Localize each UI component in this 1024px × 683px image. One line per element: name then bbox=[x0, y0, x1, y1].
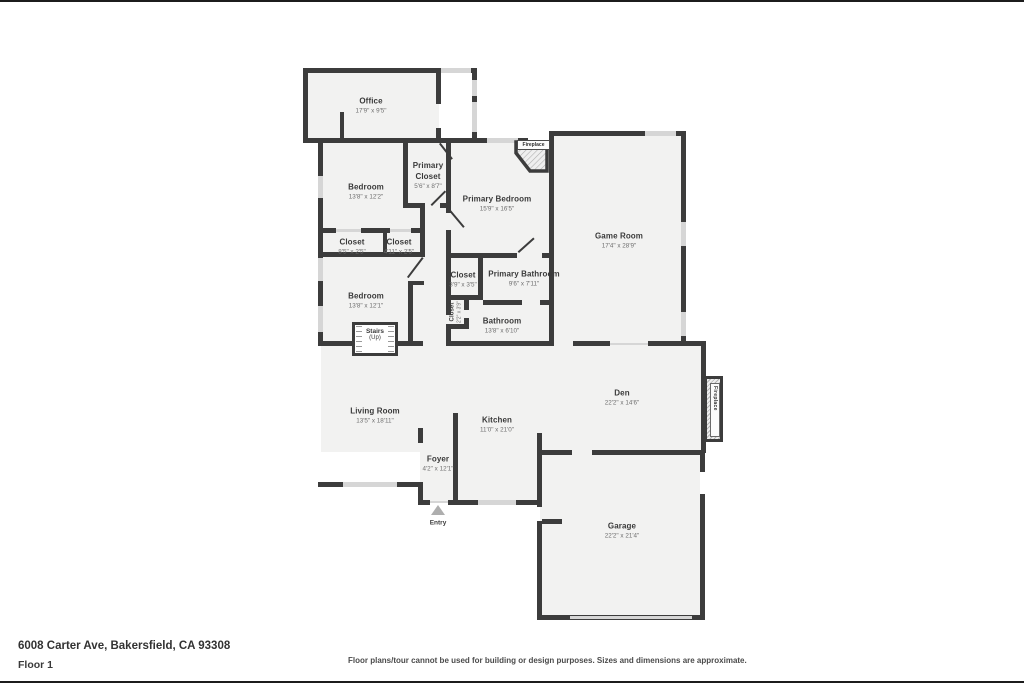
room-name: Living Room bbox=[350, 406, 400, 417]
room-dims: 22'2" x 21'4" bbox=[605, 532, 640, 541]
opening-threshold bbox=[610, 343, 648, 345]
fireplace-label: Fireplace bbox=[517, 140, 550, 150]
wall bbox=[537, 433, 542, 507]
wall bbox=[453, 413, 458, 505]
room-name: Closet bbox=[384, 237, 415, 248]
entry-label: Entry bbox=[430, 520, 447, 527]
stairs-label: Stairs (Up) bbox=[355, 328, 395, 342]
wall bbox=[303, 68, 443, 73]
screen-top-border bbox=[0, 0, 1024, 2]
window bbox=[318, 258, 323, 281]
wall bbox=[408, 285, 413, 346]
room-name: Bathroom bbox=[483, 316, 522, 327]
room-label-closet-a: Closet 8'5" x 2'5" bbox=[338, 237, 366, 256]
window bbox=[343, 482, 397, 487]
room-label-closet-c: Closet 3'9" x 3'5" bbox=[449, 270, 477, 289]
wall bbox=[446, 324, 469, 329]
room-name: Primary Closet bbox=[402, 161, 454, 183]
wall bbox=[303, 68, 308, 143]
room-label-garage: Garage 22'2" x 21'4" bbox=[605, 521, 640, 540]
wall bbox=[648, 341, 706, 346]
wall bbox=[446, 341, 553, 346]
room-dims: 2'2" x 3'9" bbox=[457, 301, 464, 323]
floor-label: Floor 1 bbox=[18, 659, 53, 671]
entry-arrow-icon bbox=[431, 505, 445, 515]
room-name: Primary Bathroom bbox=[488, 269, 559, 280]
wall bbox=[573, 341, 610, 346]
room-label-primary-closet: Primary Closet 5'6" x 8'7" bbox=[402, 161, 454, 191]
wall bbox=[478, 258, 483, 300]
room-name: Primary Bedroom bbox=[463, 194, 532, 205]
window bbox=[318, 306, 323, 332]
window bbox=[472, 102, 477, 132]
room-name: Office bbox=[355, 96, 386, 107]
stairs-name: Stairs bbox=[355, 328, 395, 335]
room-dims: 22'2" x 14'6" bbox=[605, 399, 640, 408]
wall bbox=[464, 300, 469, 310]
room-label-closet-b: Closet 4'11" x 2'5" bbox=[384, 237, 415, 256]
room-name: Closet bbox=[338, 237, 366, 248]
room-dims: 17'9" x 9'5" bbox=[355, 107, 386, 116]
room-dims: 4'11" x 2'5" bbox=[384, 248, 415, 257]
room-label-den: Den 22'2" x 14'6" bbox=[605, 388, 640, 407]
garage-door bbox=[570, 616, 692, 619]
wall bbox=[303, 138, 443, 143]
room-name: Den bbox=[605, 388, 640, 399]
window bbox=[645, 131, 676, 136]
room-dims: 13'8" x 12'2" bbox=[348, 193, 384, 202]
room-name: Bedroom bbox=[348, 182, 384, 193]
window bbox=[441, 68, 473, 73]
wall bbox=[318, 228, 336, 233]
wall bbox=[542, 519, 562, 524]
floor-plan-canvas: Stairs (Up) Fireplace Fireplace Entry Of… bbox=[0, 0, 1024, 683]
wall bbox=[411, 228, 425, 233]
room-name: Foyer bbox=[422, 454, 453, 465]
room-label-bedroom2: Bedroom 13'8" x 12'1" bbox=[348, 291, 384, 310]
room-name: Closet bbox=[449, 270, 477, 281]
room-label-closet-d: Closet 2'2" x 3'9" bbox=[449, 301, 464, 323]
closet-door bbox=[390, 229, 411, 232]
wall bbox=[592, 450, 705, 455]
wall bbox=[537, 521, 542, 620]
room-dims: 5'6" x 8'7" bbox=[402, 183, 454, 192]
fireplace-label: Fireplace bbox=[712, 386, 718, 411]
room-name: Game Room bbox=[595, 231, 643, 242]
room-label-game-room: Game Room 17'4" x 28'9" bbox=[595, 231, 643, 250]
room-label-bedroom1: Bedroom 13'8" x 12'2" bbox=[348, 182, 384, 201]
room-dims: 8'5" x 2'5" bbox=[338, 248, 366, 257]
disclaimer-text: Floor plans/tour cannot be used for buil… bbox=[348, 656, 747, 665]
room-label-primary-bathroom: Primary Bathroom 9'6" x 7'11" bbox=[488, 269, 559, 288]
room-name: Closet bbox=[449, 301, 457, 323]
closet-door bbox=[336, 229, 361, 232]
room-dims: 9'6" x 7'11" bbox=[488, 280, 559, 289]
window bbox=[318, 176, 323, 198]
room-label-primary-bedroom: Primary Bedroom 15'9" x 16'5" bbox=[463, 194, 532, 213]
room-name: Bedroom bbox=[348, 291, 384, 302]
room-name: Garage bbox=[605, 521, 640, 532]
window bbox=[681, 312, 686, 336]
wall bbox=[418, 500, 430, 505]
room-dims: 15'9" x 16'5" bbox=[463, 205, 532, 214]
room-name: Kitchen bbox=[480, 415, 514, 426]
wall bbox=[394, 341, 423, 346]
wall bbox=[436, 68, 441, 104]
wall bbox=[418, 428, 423, 443]
property-address: 6008 Carter Ave, Bakersfield, CA 93308 bbox=[18, 640, 230, 652]
fireplace-den-shape: Fireplace bbox=[704, 376, 723, 442]
room-dims: 17'4" x 28'9" bbox=[595, 242, 643, 251]
room-label-bathroom: Bathroom 13'8" x 6'10" bbox=[483, 316, 522, 335]
entry-threshold bbox=[430, 501, 448, 503]
door-opening bbox=[700, 472, 705, 494]
room-label-office: Office 17'9" x 9'5" bbox=[355, 96, 386, 115]
wall bbox=[436, 128, 441, 143]
stairs-box: Stairs (Up) bbox=[352, 322, 398, 356]
room-label-kitchen: Kitchen 11'0" x 21'0" bbox=[480, 415, 514, 434]
room-fill bbox=[321, 343, 705, 452]
window bbox=[478, 500, 516, 505]
room-dims: 11'0" x 21'0" bbox=[480, 426, 514, 435]
room-label-living-room: Living Room 13'5" x 18'11" bbox=[350, 406, 400, 425]
window bbox=[681, 222, 686, 246]
fireplace-den-inner: Fireplace bbox=[710, 383, 720, 437]
wall bbox=[483, 300, 522, 305]
room-dims: 13'8" x 12'1" bbox=[348, 302, 384, 311]
room-dims: 3'9" x 3'5" bbox=[449, 281, 477, 290]
window bbox=[472, 80, 477, 96]
stairs-direction: (Up) bbox=[355, 335, 395, 342]
wall bbox=[318, 341, 352, 346]
wall bbox=[537, 450, 572, 455]
room-label-foyer: Foyer 4'2" x 12'1" bbox=[422, 454, 453, 473]
room-dims: 13'8" x 6'10" bbox=[483, 327, 522, 336]
room-dims: 13'5" x 18'11" bbox=[350, 417, 400, 426]
room-dims: 4'2" x 12'1" bbox=[422, 465, 453, 474]
